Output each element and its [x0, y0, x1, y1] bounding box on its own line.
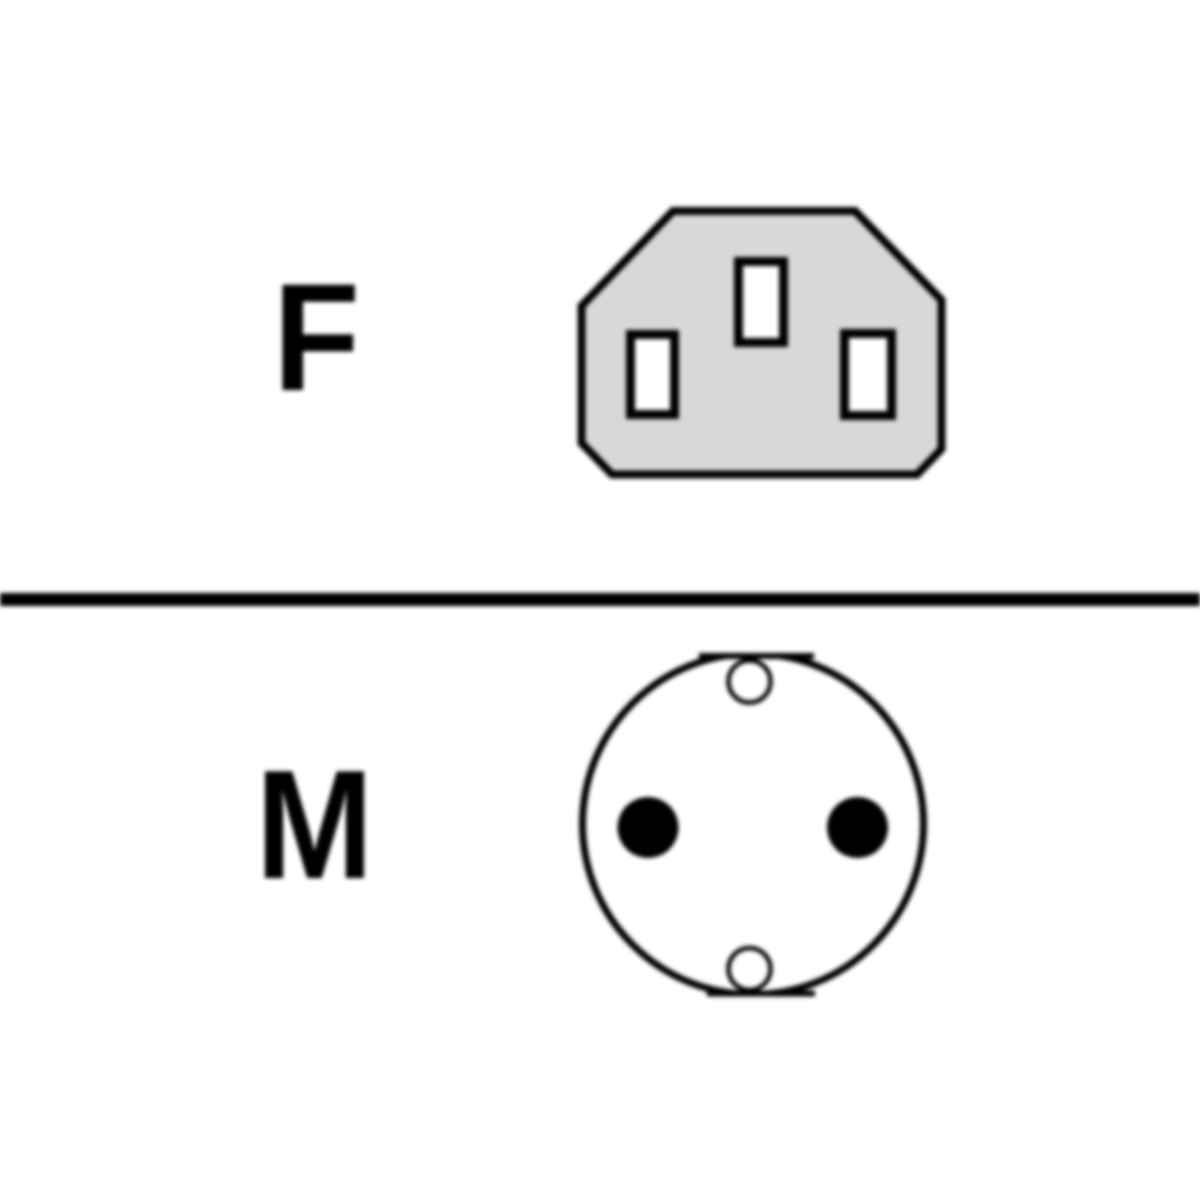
svg-text:M: M [256, 739, 374, 911]
svg-text:F: F [273, 252, 360, 423]
